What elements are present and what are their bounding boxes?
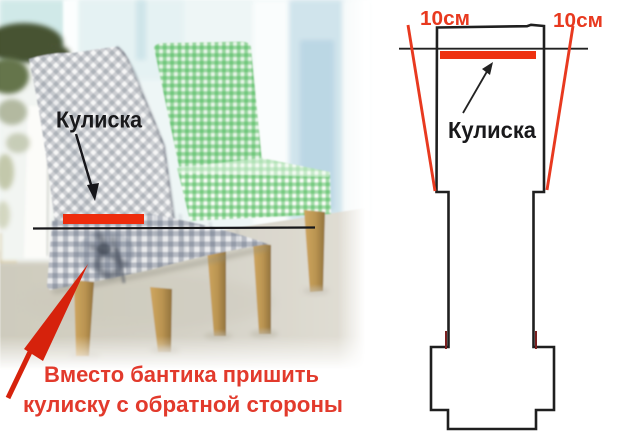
svg-text:10см: 10см — [553, 10, 603, 32]
svg-text:Кулиска: Кулиска — [448, 117, 537, 143]
svg-text:10см: 10см — [420, 8, 470, 30]
svg-text:Кулиска: Кулиска — [56, 107, 142, 133]
svg-text:кулиску с обратной стороны: кулиску с обратной стороны — [23, 392, 343, 417]
svg-text:Вместо бантика пришить: Вместо бантика пришить — [44, 362, 319, 387]
